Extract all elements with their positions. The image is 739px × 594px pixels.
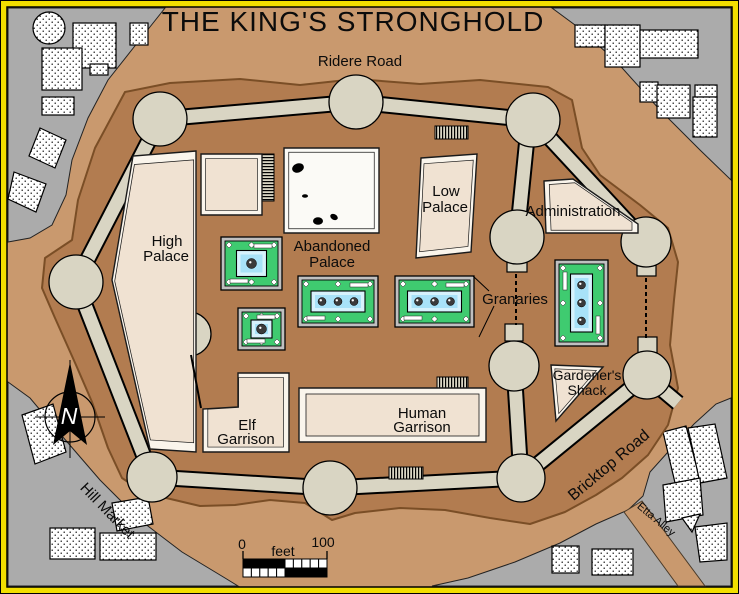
- town-building-2: [42, 48, 82, 90]
- wall-tower-10: [497, 454, 545, 502]
- pool-ornament: [447, 298, 455, 306]
- stronghold-map: N 0 feet 100 THE KING'S STRONGHOLD Rider…: [0, 0, 739, 594]
- road-label-ridere: Ridere Road: [318, 53, 402, 70]
- label-abandoned-palace-1: Abandoned: [294, 238, 371, 255]
- garden-bench: [404, 316, 422, 320]
- scale-cell: [260, 568, 268, 577]
- scale-cell: [293, 559, 301, 568]
- town-building-15: [592, 549, 633, 575]
- label-human-garrison-2: Garrison: [393, 419, 451, 436]
- town-building-10: [695, 85, 717, 97]
- pool-ornament: [318, 298, 326, 306]
- garden-bench: [446, 283, 464, 287]
- scale-label-end: 100: [311, 534, 335, 550]
- scale-segment-solid: [285, 568, 327, 577]
- pool-ornament: [334, 298, 342, 306]
- pool-ornament-highlight: [259, 327, 261, 329]
- pool-ornament: [578, 317, 586, 325]
- pool-ornament-highlight: [320, 299, 322, 301]
- scale-cell: [251, 568, 259, 577]
- scale-cell: [319, 559, 327, 568]
- pool-ornament-highlight: [448, 299, 450, 301]
- wall-tower-0: [133, 92, 187, 146]
- pool-ornament: [578, 299, 586, 307]
- stairs-palace-annex: [262, 154, 274, 201]
- pool-ornament: [431, 298, 439, 306]
- pool-ornament-highlight: [432, 299, 434, 301]
- town-building-7: [640, 30, 698, 58]
- garden-bench: [307, 316, 325, 320]
- scale-cell: [268, 568, 276, 577]
- label-low-palace-2: Palace: [422, 199, 468, 216]
- pool-ornament: [350, 298, 358, 306]
- label-high-palace-2: Palace: [143, 248, 189, 265]
- stairs-north-wall: [435, 126, 468, 139]
- pool-ornament-highlight: [579, 301, 581, 303]
- town-building-1: [130, 23, 148, 45]
- wall-tower-1: [329, 75, 383, 129]
- garden-bench: [247, 339, 265, 343]
- pool-ornament: [578, 281, 586, 289]
- stairs-south-wall: [389, 467, 423, 479]
- compass-north-label: N: [61, 403, 78, 429]
- pool-ornament-highlight: [352, 299, 354, 301]
- scale-cell: [277, 568, 285, 577]
- pool-ornament-highlight: [579, 283, 581, 285]
- town-building-9: [657, 85, 690, 118]
- town-building-12: [50, 528, 95, 559]
- granary-2: [298, 276, 378, 327]
- label-gardeners-shack-1: Gardener's: [553, 367, 622, 383]
- scale-cell: [310, 559, 318, 568]
- garden-bench: [563, 272, 567, 290]
- stairs-human-garrison: [437, 377, 468, 388]
- wall-tower-9: [303, 461, 357, 515]
- scale-cell: [243, 568, 251, 577]
- scale-label-start: 0: [238, 536, 246, 552]
- pool-ornament: [415, 298, 423, 306]
- town-building-11: [693, 97, 717, 137]
- pool-ornament: [247, 259, 257, 269]
- label-low-palace-1: Low: [432, 183, 460, 200]
- wall-tower-4: [623, 351, 671, 399]
- scale-cell: [302, 559, 310, 568]
- scale-label-unit: feet: [271, 543, 294, 559]
- town-building-tilted-8: [695, 523, 727, 562]
- pool-ornament-highlight: [416, 299, 418, 301]
- town-building-4: [42, 97, 74, 115]
- granary-1: [238, 308, 285, 350]
- label-administration: Administration: [525, 203, 620, 220]
- label-abandoned-palace-2: Palace: [309, 254, 355, 271]
- garden-bench: [596, 316, 600, 334]
- pool-ornament-highlight: [249, 261, 251, 263]
- label-granaries: Granaries: [482, 291, 548, 308]
- pool-ornament: [257, 324, 267, 334]
- garden-bench: [254, 244, 272, 248]
- label-elf-garrison-2: Garrison: [217, 431, 275, 448]
- scale-bar-cells: [243, 559, 327, 577]
- label-gardeners-shack-2: Shack: [568, 382, 608, 398]
- town-building-round: [33, 12, 65, 44]
- town-building-6: [605, 25, 640, 67]
- garden-bench: [257, 315, 275, 319]
- pool-ornament-highlight: [579, 319, 581, 321]
- town-building-5: [575, 25, 605, 47]
- wall-tower-2: [506, 93, 560, 147]
- scale-segment-solid: [243, 559, 285, 568]
- page-title: THE KING'S STRONGHOLD: [162, 6, 545, 37]
- town-building-14: [552, 546, 579, 573]
- wall-tower-8: [127, 452, 177, 502]
- building-abandoned-palace: [284, 148, 379, 233]
- granary-4: [555, 260, 608, 346]
- map-page: N 0 feet 100 THE KING'S STRONGHOLD Rider…: [0, 0, 739, 594]
- granary-3: [395, 276, 474, 327]
- garden-bench: [230, 279, 248, 283]
- town-building-8: [640, 82, 658, 102]
- granary-0: [221, 237, 282, 290]
- pool-ornament-highlight: [336, 299, 338, 301]
- building-palace-annex: [201, 154, 262, 215]
- wall-tower-7: [49, 255, 103, 309]
- garden-bench: [350, 283, 368, 287]
- town-building-3: [90, 64, 108, 75]
- scale-cell: [285, 559, 293, 568]
- wall-bastion-3: [505, 324, 523, 341]
- wall-tower-6: [489, 341, 539, 391]
